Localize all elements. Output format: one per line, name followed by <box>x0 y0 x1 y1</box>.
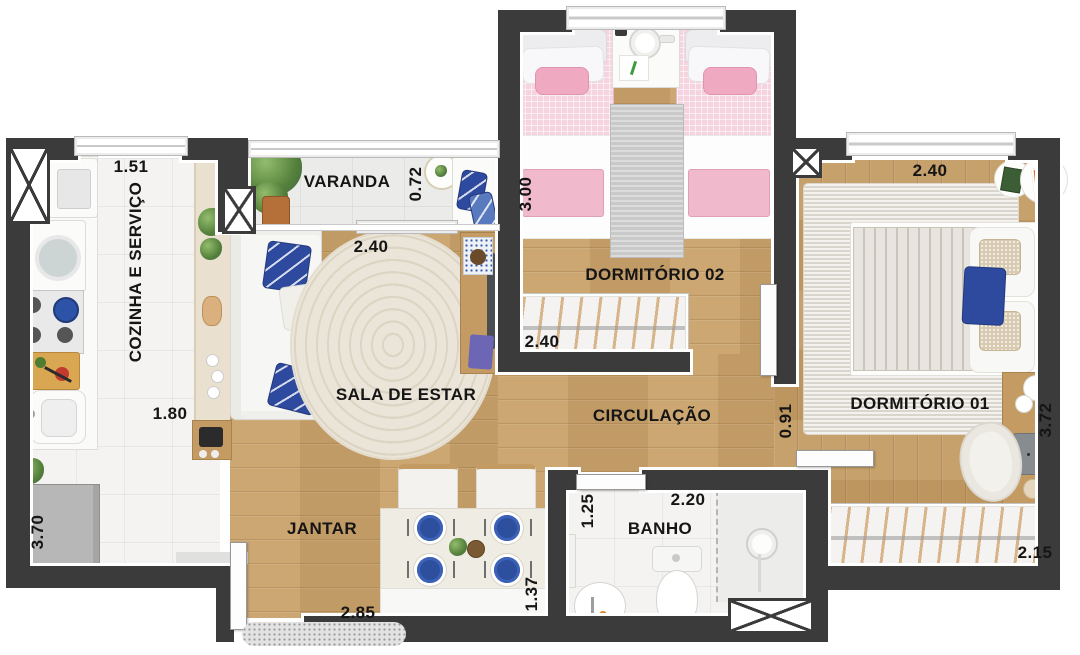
decor-plate <box>463 237 493 275</box>
plate-1 <box>417 515 443 541</box>
bedroom1-window <box>846 132 1016 156</box>
wall <box>6 566 232 588</box>
dim-hall-width: 0.91 <box>776 404 796 439</box>
dim-kitchen-width: 1.51 <box>114 157 149 177</box>
dim-living-width: 2.40 <box>354 237 389 257</box>
plate-3 <box>417 557 443 583</box>
wall <box>498 352 690 372</box>
cup-3 <box>207 386 220 399</box>
decor-purple <box>468 334 494 370</box>
bedroom1-door <box>796 450 874 467</box>
shaft-bedroom1 <box>790 146 822 178</box>
dim-balcony-depth: 0.72 <box>406 167 426 202</box>
bed2-right <box>676 22 778 238</box>
dim-bathroom-width: 2.20 <box>671 490 706 510</box>
floor-plan: COZINHA E SERVIÇO 1.51 1.80 3.70 VARANDA… <box>0 0 1080 655</box>
coffee-station <box>192 420 232 460</box>
dim-bedroom1-depth: 3.72 <box>1036 403 1056 438</box>
bedroom1-closet <box>818 504 1042 572</box>
plate-4 <box>494 557 520 583</box>
kettle <box>53 297 79 323</box>
wall <box>1038 138 1060 590</box>
kitchen-sink <box>30 390 86 444</box>
cup-1 <box>206 354 219 367</box>
bedroom2-rug <box>610 104 684 258</box>
balcony-door-track <box>248 224 500 231</box>
table-trivet <box>467 540 485 558</box>
label-balcony: VARANDA <box>304 172 391 192</box>
label-living: SALA DE ESTAR <box>336 385 476 405</box>
dim-bathroom-depth: 1.25 <box>578 494 598 529</box>
shaft-bathroom <box>728 598 814 634</box>
bed1 <box>850 222 1042 376</box>
plate-2 <box>494 515 520 541</box>
label-bathroom: BANHO <box>628 519 692 539</box>
label-kitchen: COZINHA E SERVIÇO <box>126 182 146 363</box>
wall <box>498 10 572 32</box>
bread-basket <box>202 296 222 326</box>
shaft-kitchen <box>8 146 50 224</box>
kitchen-window <box>74 136 188 156</box>
label-dining: JANTAR <box>287 519 357 539</box>
dim-bedroom2-depth: 3.00 <box>516 177 536 212</box>
cutting-board <box>28 352 80 390</box>
label-bedroom2: DORMITÓRIO 02 <box>585 265 724 285</box>
bed1-blue-pillow <box>962 266 1007 326</box>
dim-dining-width: 2.85 <box>341 603 376 623</box>
shower-head <box>746 528 778 560</box>
wall <box>814 566 1060 590</box>
entry-doormat <box>242 622 406 646</box>
wall <box>774 10 796 384</box>
dim-bedroom1-closet: 2.15 <box>1018 543 1053 563</box>
dim-dining-depth: 1.37 <box>522 577 542 612</box>
label-bedroom1: DORMITÓRIO 01 <box>850 394 989 414</box>
dim-bedroom2-closet: 2.40 <box>525 332 560 352</box>
dim-kitchen-side: 3.70 <box>28 515 48 550</box>
shower-pole <box>758 554 761 592</box>
cup-2 <box>211 370 224 383</box>
label-hall: CIRCULAÇÃO <box>593 406 711 426</box>
bed1-blanket <box>853 227 977 371</box>
bedroom2-window <box>566 6 726 30</box>
bedroom2-door <box>760 284 777 376</box>
entry-door <box>230 542 247 630</box>
laundry-tank <box>48 158 98 218</box>
wall <box>642 470 810 490</box>
dim-kitchen-length: 1.80 <box>153 404 188 424</box>
balcony-railing <box>248 140 500 158</box>
nightstand <box>612 22 680 88</box>
cutlery <box>407 519 409 536</box>
dim-bedroom1-width: 2.40 <box>913 161 948 181</box>
shaft-balcony <box>222 186 256 234</box>
bathroom-door <box>576 474 646 490</box>
